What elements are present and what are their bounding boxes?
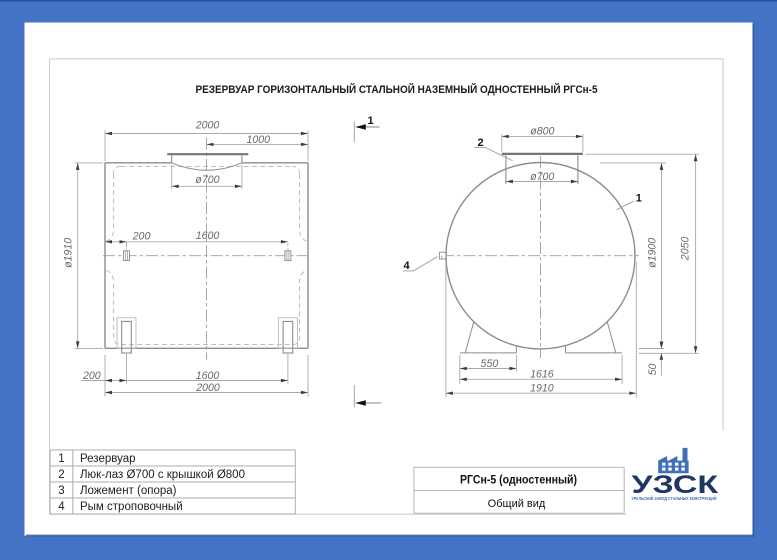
svg-text:Ложемент (опора): Ложемент (опора) <box>80 485 177 497</box>
svg-text:УРАЛЬСКИЙ ЗАВОД СТАЛЬНЫХ КОНСТ: УРАЛЬСКИЙ ЗАВОД СТАЛЬНЫХ КОНСТРУКЦИЙ <box>632 494 717 501</box>
svg-text:ø700: ø700 <box>530 171 554 183</box>
svg-text:1: 1 <box>636 192 642 204</box>
svg-text:2000: 2000 <box>195 119 220 131</box>
svg-text:Рым строповочный: Рым строповочный <box>80 501 183 513</box>
svg-text:1000: 1000 <box>247 134 271 146</box>
svg-text:1910: 1910 <box>530 383 554 395</box>
svg-text:200: 200 <box>82 370 101 382</box>
svg-text:50: 50 <box>647 364 659 376</box>
svg-text:1: 1 <box>368 115 374 127</box>
svg-text:РГСн-5 (одностенный): РГСн-5 (одностенный) <box>460 472 577 486</box>
svg-text:200: 200 <box>132 230 151 242</box>
svg-text:4: 4 <box>58 501 65 513</box>
svg-text:4: 4 <box>403 260 410 272</box>
svg-text:2000: 2000 <box>195 382 220 394</box>
svg-text:ø1900: ø1900 <box>647 238 659 268</box>
svg-text:2: 2 <box>58 469 64 481</box>
svg-text:1600: 1600 <box>196 370 220 382</box>
svg-text:2050: 2050 <box>680 237 692 262</box>
svg-text:3: 3 <box>58 485 64 497</box>
svg-text:Резервуар: Резервуар <box>80 453 136 465</box>
svg-text:1616: 1616 <box>530 369 554 381</box>
svg-text:550: 550 <box>481 358 499 370</box>
svg-text:Общий вид: Общий вид <box>488 498 546 510</box>
svg-text:Люк-лаз Ø700 с крышкой Ø800: Люк-лаз Ø700 с крышкой Ø800 <box>80 469 245 481</box>
svg-text:ø800: ø800 <box>530 126 554 138</box>
svg-text:1600: 1600 <box>196 230 220 242</box>
svg-text:ø1910: ø1910 <box>63 238 75 268</box>
svg-text:ø700: ø700 <box>195 174 219 186</box>
svg-text:1: 1 <box>58 453 64 465</box>
svg-text:УЗСК: УЗСК <box>632 471 719 499</box>
svg-text:РЕЗЕРВУАР ГОРИЗОНТАЛЬНЫЙ СТАЛЬ: РЕЗЕРВУАР ГОРИЗОНТАЛЬНЫЙ СТАЛЬНОЙ НАЗЕМН… <box>196 83 598 96</box>
